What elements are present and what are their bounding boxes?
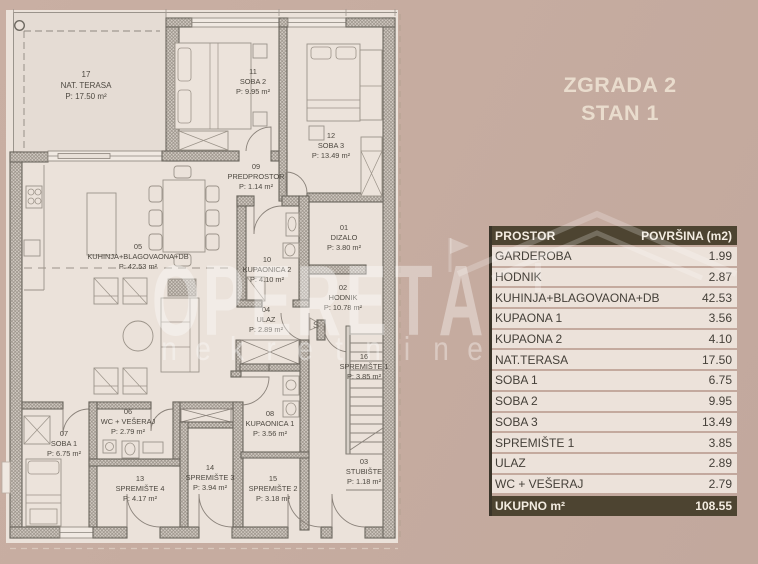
svg-text:KUPAONICA 2: KUPAONICA 2 xyxy=(243,265,292,274)
svg-text:P: 3.56 m²: P: 3.56 m² xyxy=(253,429,288,438)
svg-text:17: 17 xyxy=(82,70,91,79)
svg-text:03: 03 xyxy=(360,457,368,466)
svg-text:SOBA 3: SOBA 3 xyxy=(318,141,344,150)
svg-text:SPREMIŠTE 3: SPREMIŠTE 3 xyxy=(186,473,235,482)
svg-text:P: 4.10 m²: P: 4.10 m² xyxy=(250,275,285,284)
svg-text:01: 01 xyxy=(340,223,348,232)
svg-text:04: 04 xyxy=(262,305,270,314)
svg-text:P: 17.50 m²: P: 17.50 m² xyxy=(65,92,107,101)
svg-text:07: 07 xyxy=(60,429,68,438)
svg-text:12: 12 xyxy=(327,131,335,140)
svg-text:HODNIK: HODNIK xyxy=(329,293,358,302)
svg-text:02: 02 xyxy=(339,283,347,292)
svg-text:P: 3.94 m²: P: 3.94 m² xyxy=(193,483,228,492)
svg-text:STUBIŠTE: STUBIŠTE xyxy=(346,467,382,476)
svg-text:PREDPROSTOR: PREDPROSTOR xyxy=(228,172,285,181)
svg-text:14: 14 xyxy=(206,463,214,472)
svg-text:09: 09 xyxy=(252,162,260,171)
svg-text:P: 13.49 m²: P: 13.49 m² xyxy=(312,151,351,160)
svg-text:KUPAONICA 1: KUPAONICA 1 xyxy=(246,419,295,428)
svg-text:08: 08 xyxy=(266,409,274,418)
svg-text:16: 16 xyxy=(360,352,368,361)
svg-text:P: 3.80 m²: P: 3.80 m² xyxy=(327,243,362,252)
svg-text:KUHINJA+BLAGOVAONA+DB: KUHINJA+BLAGOVAONA+DB xyxy=(87,252,188,261)
svg-text:P: 10.78 m²: P: 10.78 m² xyxy=(324,303,363,312)
svg-text:P: 1.14 m²: P: 1.14 m² xyxy=(239,182,274,191)
svg-text:15: 15 xyxy=(269,474,277,483)
svg-text:SPREMIŠTE 4: SPREMIŠTE 4 xyxy=(116,484,165,493)
svg-text:SPREMIŠTE 1: SPREMIŠTE 1 xyxy=(340,362,389,371)
svg-text:SOBA 2: SOBA 2 xyxy=(240,77,266,86)
svg-text:P: 9.95 m²: P: 9.95 m² xyxy=(236,87,271,96)
svg-text:P: 6.75 m²: P: 6.75 m² xyxy=(47,449,82,458)
svg-text:13: 13 xyxy=(136,474,144,483)
svg-text:P: 2.79 m²: P: 2.79 m² xyxy=(111,427,146,436)
svg-text:P: 3.18 m²: P: 3.18 m² xyxy=(256,494,291,503)
svg-text:P: 4.17 m²: P: 4.17 m² xyxy=(123,494,158,503)
svg-text:P: 1.18 m²: P: 1.18 m² xyxy=(347,477,382,486)
svg-text:11: 11 xyxy=(249,67,257,76)
svg-text:DIZALO: DIZALO xyxy=(331,233,358,242)
svg-text:WC + VEŠERAJ: WC + VEŠERAJ xyxy=(101,417,156,426)
svg-text:P: 42.53 m²: P: 42.53 m² xyxy=(119,262,158,271)
svg-text:SPREMIŠTE 2: SPREMIŠTE 2 xyxy=(249,484,298,493)
svg-text:ULAZ: ULAZ xyxy=(257,315,276,324)
svg-text:S: S xyxy=(313,320,319,330)
svg-text:06: 06 xyxy=(124,407,132,416)
svg-text:NAT. TERASA: NAT. TERASA xyxy=(61,81,112,90)
svg-text:05: 05 xyxy=(134,242,142,251)
svg-text:SOBA 1: SOBA 1 xyxy=(51,439,77,448)
svg-text:10: 10 xyxy=(263,255,271,264)
svg-text:P: 3.85 m²: P: 3.85 m² xyxy=(347,372,382,381)
svg-text:P: 2.89 m²: P: 2.89 m² xyxy=(249,325,284,334)
